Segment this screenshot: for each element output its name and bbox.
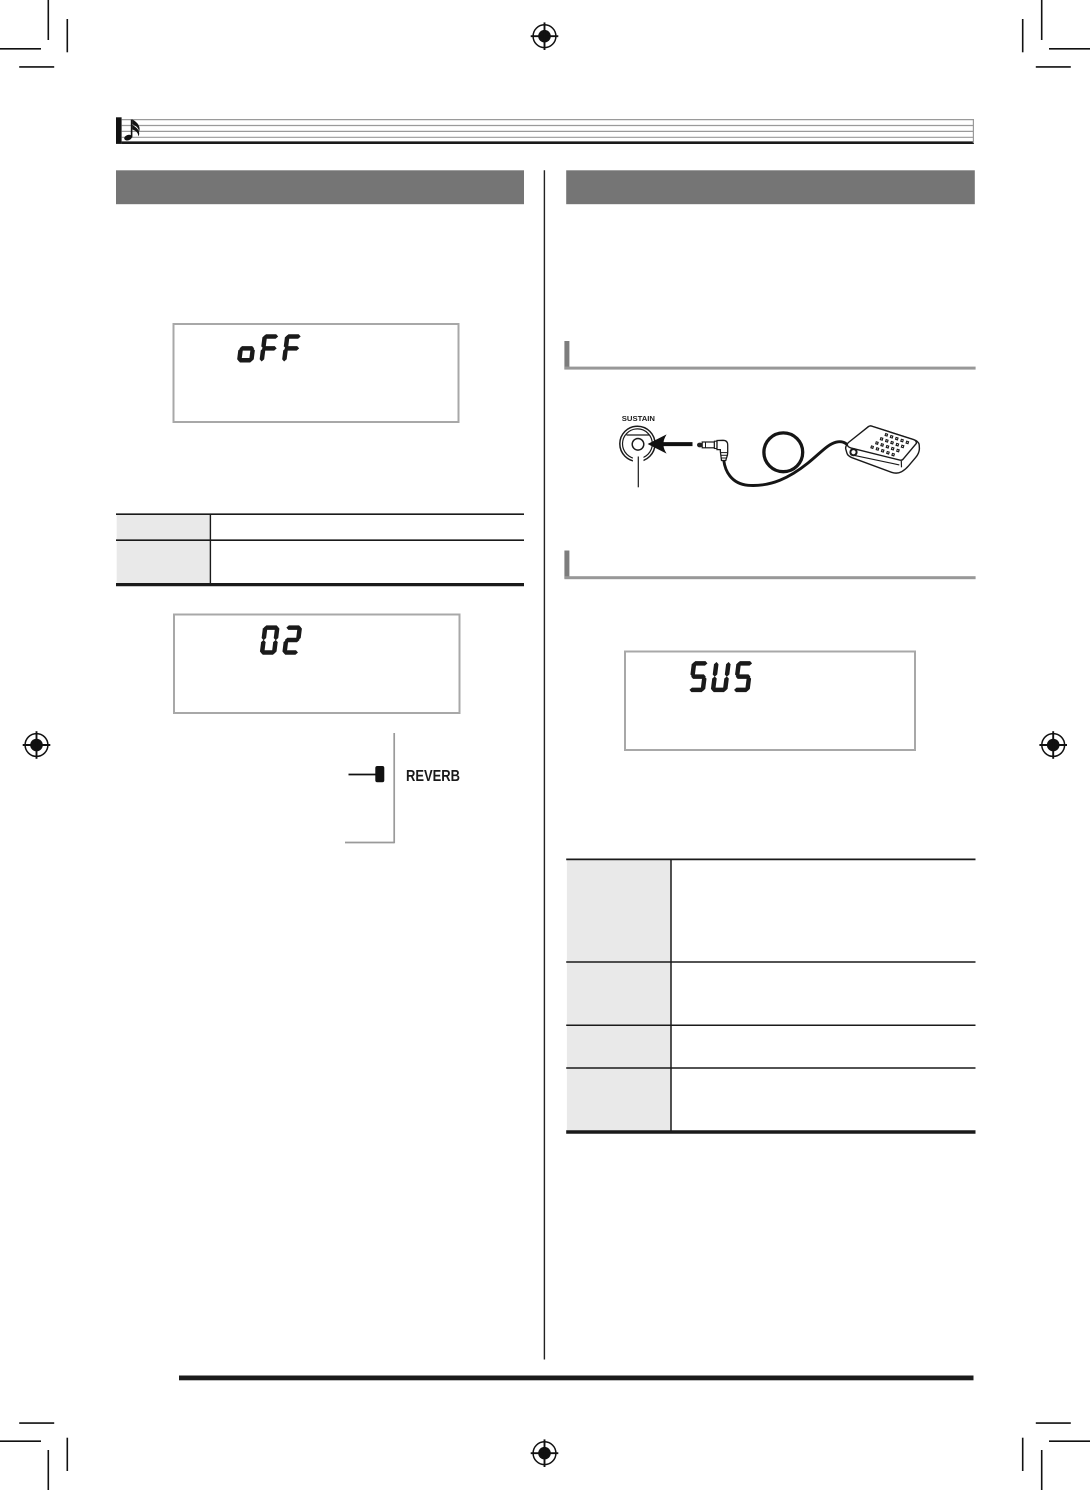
svg-text:SUSTAIN: SUSTAIN	[622, 414, 655, 423]
svg-text:REVERB: REVERB	[406, 768, 460, 785]
